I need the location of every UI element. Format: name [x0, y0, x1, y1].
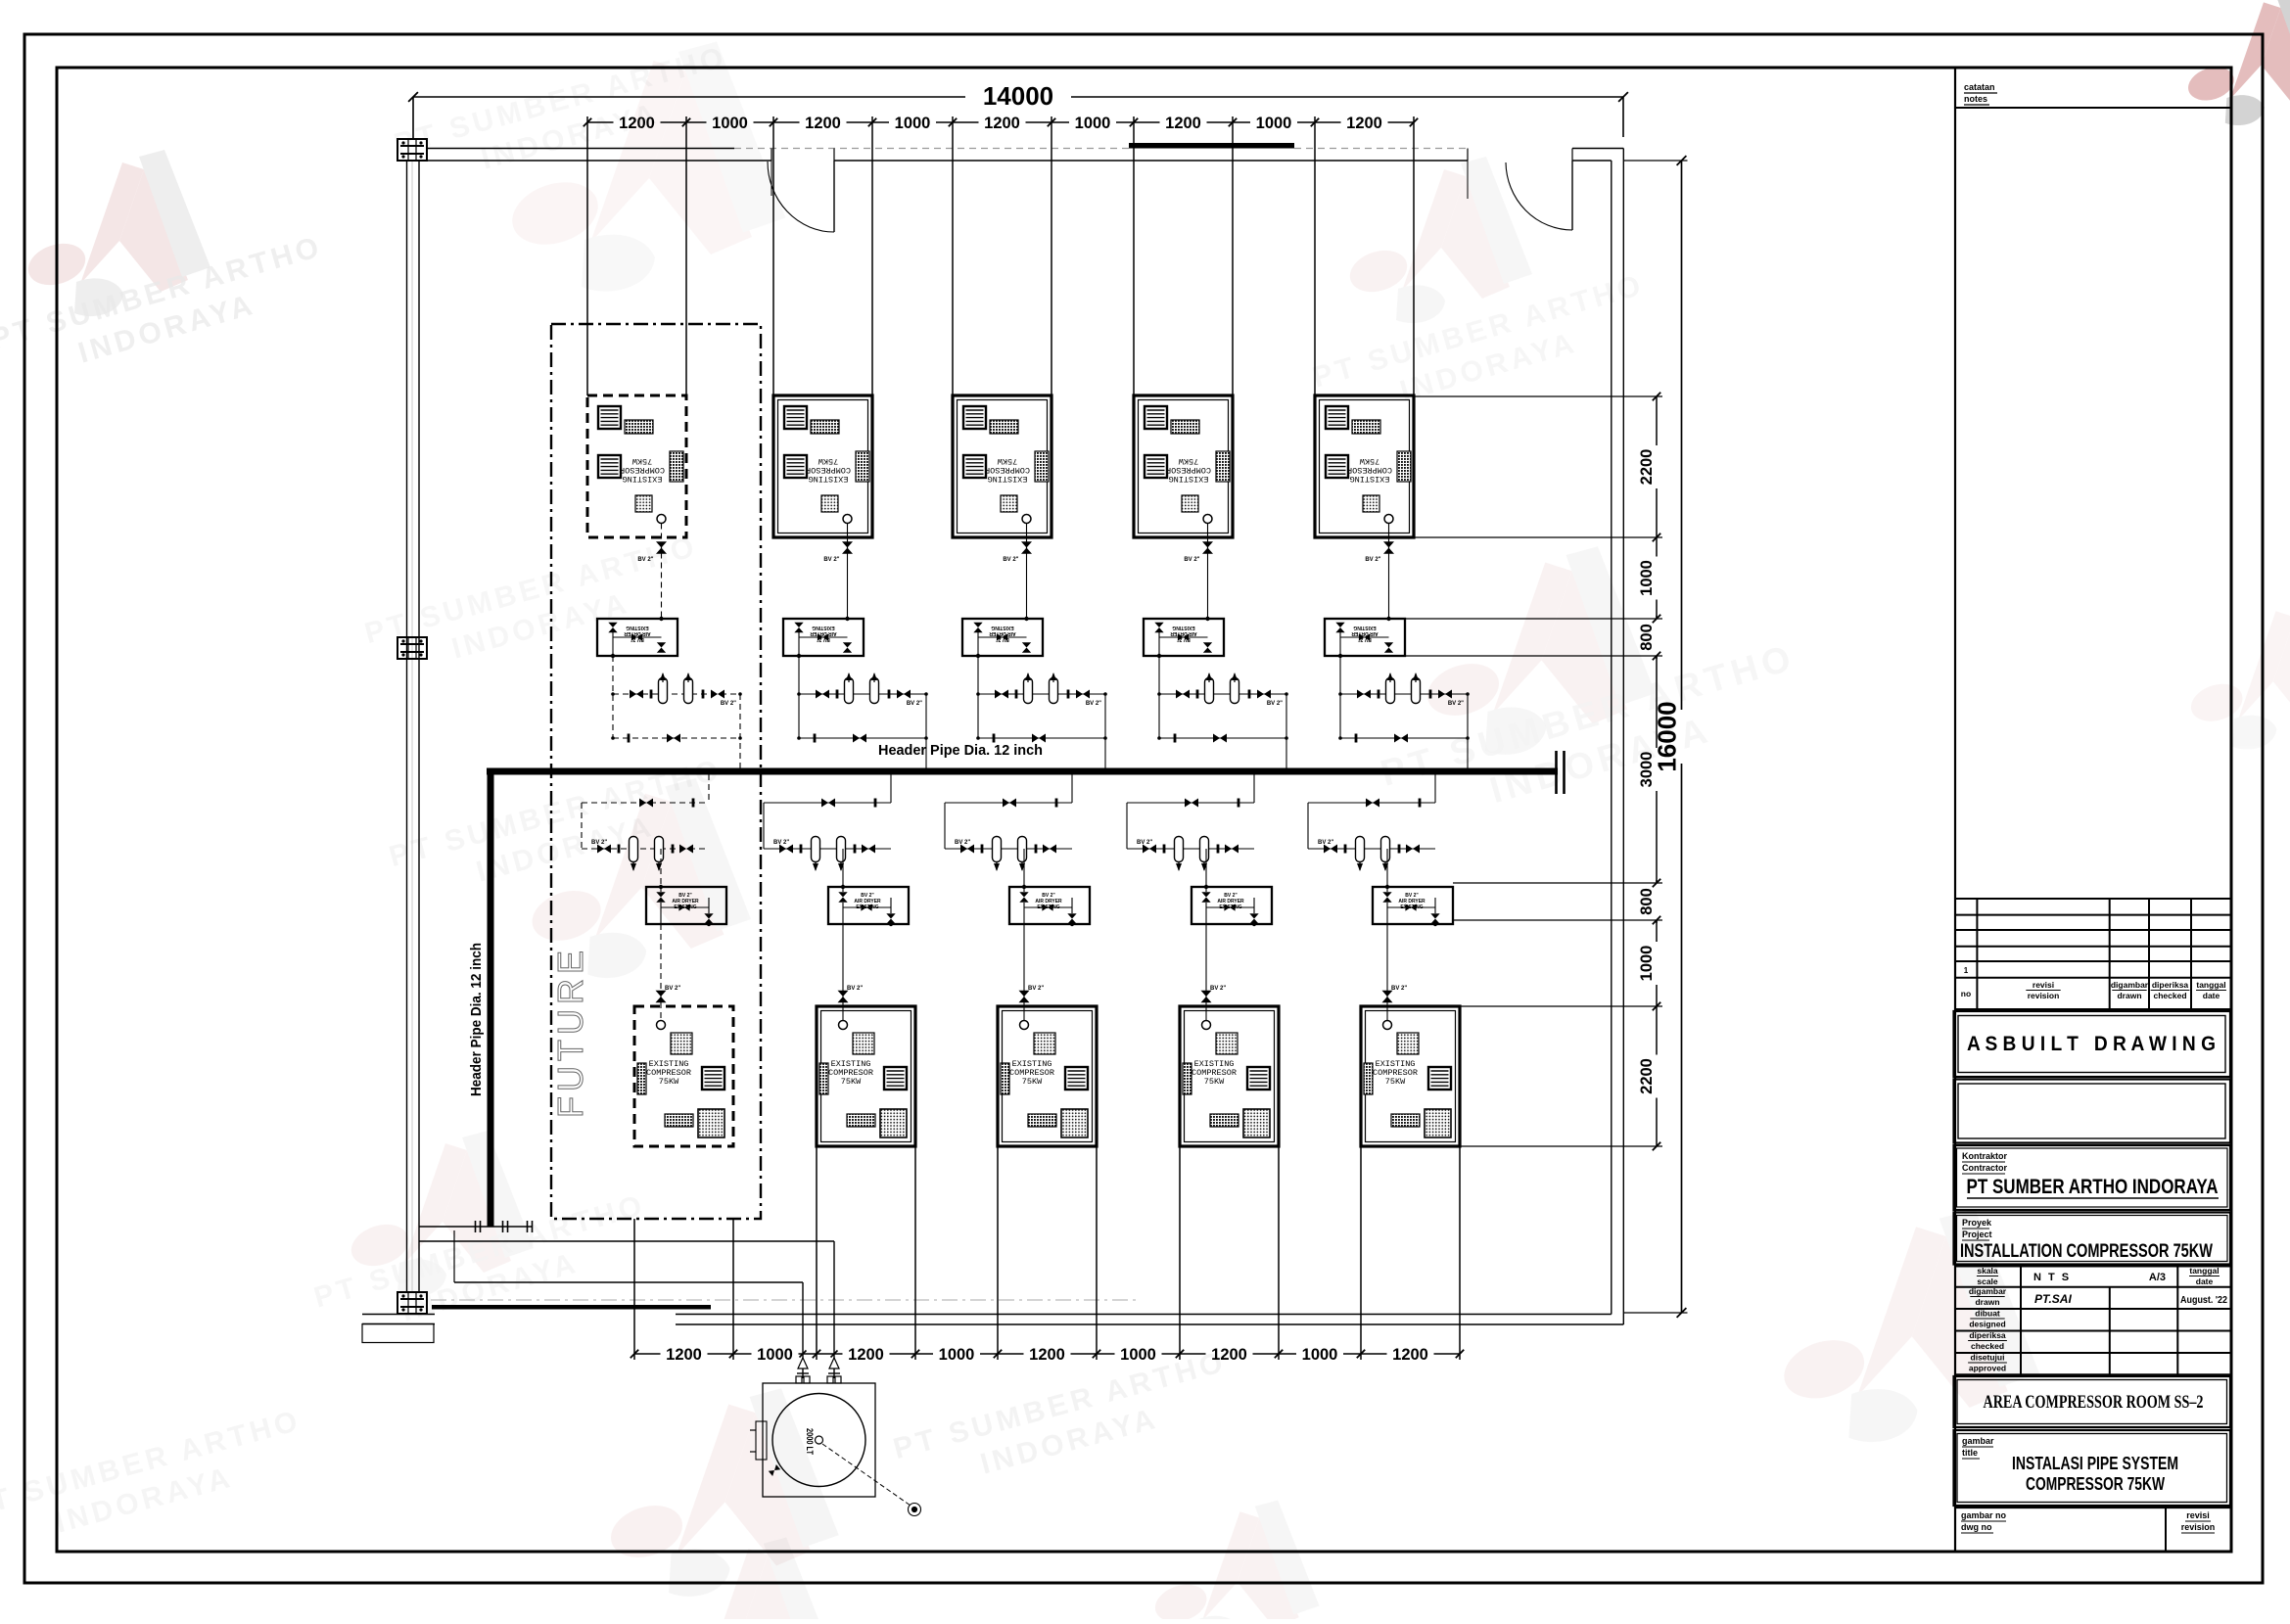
svg-text:BV 2": BV 2": [847, 986, 863, 992]
svg-text:1000: 1000: [1256, 115, 1292, 132]
svg-text:diperiksa: diperiksa: [2152, 980, 2189, 990]
svg-text:1000: 1000: [939, 1346, 975, 1364]
svg-text:BV 2": BV 2": [637, 557, 653, 563]
svg-text:1000: 1000: [1120, 1346, 1156, 1364]
svg-text:tanggal: tanggal: [2189, 1266, 2219, 1276]
svg-text:tanggal: tanggal: [2196, 980, 2225, 990]
svg-text:Kontraktor: Kontraktor: [1962, 1151, 2007, 1161]
svg-text:1000: 1000: [757, 1346, 793, 1364]
svg-text:FUTURE: FUTURE: [550, 946, 590, 1118]
svg-text:75KW: 75KW: [997, 456, 1017, 466]
svg-text:2200: 2200: [1638, 1058, 1656, 1094]
svg-text:dibuat: dibuat: [1975, 1309, 2000, 1319]
svg-text:EXISTING: EXISTING: [991, 625, 1013, 630]
svg-text:BV 2": BV 2": [1448, 701, 1464, 707]
svg-text:dwg no: dwg no: [1961, 1522, 1992, 1532]
svg-text:75KW: 75KW: [1204, 1077, 1225, 1087]
svg-text:Contractor: Contractor: [1962, 1163, 2007, 1173]
svg-text:EXISTING: EXISTING: [812, 625, 834, 630]
svg-text:1200: 1200: [666, 1346, 702, 1364]
svg-text:gambar: gambar: [1962, 1436, 1994, 1446]
svg-text:BV 2": BV 2": [1318, 840, 1333, 846]
svg-text:notes: notes: [1964, 94, 1987, 104]
svg-text:Proyek: Proyek: [1962, 1218, 1992, 1228]
svg-text:A/3: A/3: [2149, 1272, 2166, 1283]
svg-text:catatan: catatan: [1964, 82, 1995, 92]
svg-text:BV 2": BV 2": [591, 840, 607, 846]
svg-text:revisi: revisi: [2186, 1510, 2210, 1520]
svg-text:revision: revision: [2028, 991, 2060, 1000]
svg-text:N T S: N T S: [2033, 1272, 2071, 1283]
svg-text:drawn: drawn: [2117, 991, 2141, 1000]
svg-text:BV 2": BV 2": [1365, 557, 1380, 563]
svg-text:BV 2": BV 2": [1391, 986, 1407, 992]
svg-text:1200: 1200: [1165, 115, 1201, 132]
svg-text:1000: 1000: [1302, 1346, 1338, 1364]
svg-text:Header Pipe Dia. 12 inch: Header Pipe Dia. 12 inch: [878, 743, 1043, 759]
svg-text:EXISTING: EXISTING: [856, 905, 878, 910]
svg-text:1200: 1200: [619, 115, 655, 132]
svg-text:BV 2": BV 2": [1184, 557, 1199, 563]
svg-text:A S B U I L T D R A W I N G: A S B U I L T D R A W I N G: [1967, 1033, 2216, 1055]
svg-text:16000: 16000: [1653, 701, 1682, 771]
svg-text:Header Pipe Dia. 12 inch: Header Pipe Dia. 12 inch: [469, 943, 485, 1096]
svg-text:75KW: 75KW: [1178, 456, 1198, 466]
svg-text:INSTALASI PIPE SYSTEM: INSTALASI PIPE SYSTEM: [2012, 1454, 2178, 1473]
svg-text:1200: 1200: [984, 115, 1020, 132]
svg-text:BV 2": BV 2": [907, 701, 922, 707]
svg-text:1: 1: [1964, 966, 1969, 975]
svg-text:75KW: 75KW: [631, 456, 652, 466]
svg-text:skala: skala: [1977, 1266, 1998, 1276]
svg-text:BV 2": BV 2": [665, 986, 680, 992]
svg-text:1000: 1000: [1638, 946, 1656, 982]
svg-text:designed: designed: [1969, 1320, 2005, 1329]
svg-text:EXISTING: EXISTING: [626, 625, 648, 630]
svg-text:1000: 1000: [1075, 115, 1111, 132]
svg-text:EXISTING: EXISTING: [1400, 905, 1423, 910]
svg-text:BV 2": BV 2": [1210, 986, 1226, 992]
svg-text:BV 2": BV 2": [1086, 701, 1101, 707]
svg-text:scale: scale: [1977, 1276, 1998, 1286]
svg-text:1000: 1000: [1638, 560, 1656, 596]
svg-text:revisi: revisi: [2033, 980, 2054, 990]
svg-text:no: no: [1961, 989, 1971, 998]
svg-text:1200: 1200: [1029, 1346, 1065, 1364]
svg-text:75KW: 75KW: [1385, 1077, 1406, 1087]
svg-text:EXISTING: EXISTING: [1219, 905, 1241, 910]
svg-text:COMPRESSOR 75KW: COMPRESSOR 75KW: [2026, 1474, 2165, 1494]
svg-text:digambar: digambar: [1969, 1286, 2007, 1296]
svg-text:BV 2": BV 2": [1137, 840, 1152, 846]
svg-text:drawn: drawn: [1975, 1297, 1999, 1307]
svg-text:1000: 1000: [895, 115, 931, 132]
svg-text:1200: 1200: [848, 1346, 884, 1364]
svg-text:Project: Project: [1962, 1230, 1992, 1239]
svg-text:EXISTING: EXISTING: [1037, 905, 1059, 910]
svg-text:August. '22: August. '22: [2180, 1294, 2227, 1306]
svg-text:75KW: 75KW: [659, 1077, 679, 1087]
svg-text:EXISTING: EXISTING: [1172, 625, 1194, 630]
svg-text:disetujui: disetujui: [1971, 1353, 2005, 1363]
svg-text:14000: 14000: [983, 81, 1053, 111]
svg-text:checked: checked: [2153, 991, 2186, 1000]
svg-text:BV 2": BV 2": [721, 701, 736, 707]
svg-text:revision: revision: [2181, 1522, 2216, 1532]
svg-text:digambar: digambar: [2111, 980, 2149, 990]
svg-text:INSTALLATION COMPRESSOR 75KW: INSTALLATION COMPRESSOR 75KW: [1960, 1240, 2213, 1262]
svg-text:2000 LT: 2000 LT: [804, 1428, 815, 1455]
svg-text:gambar no: gambar no: [1961, 1510, 2007, 1520]
svg-text:checked: checked: [1971, 1341, 2004, 1351]
svg-text:1200: 1200: [1346, 115, 1382, 132]
svg-text:75KW: 75KW: [1022, 1077, 1043, 1087]
svg-text:title: title: [1962, 1448, 1978, 1458]
svg-text:PT.SAI: PT.SAI: [2034, 1292, 2072, 1306]
svg-text:date: date: [2196, 1276, 2214, 1286]
svg-text:75KW: 75KW: [1359, 456, 1379, 466]
svg-text:BV 2": BV 2": [1267, 701, 1283, 707]
svg-text:EXISTING: EXISTING: [674, 905, 696, 910]
svg-text:PT SUMBER ARTHO INDORAYA: PT SUMBER ARTHO INDORAYA: [1967, 1176, 2219, 1198]
svg-text:75KW: 75KW: [818, 456, 838, 466]
svg-text:BV 2": BV 2": [1028, 986, 1044, 992]
svg-text:800: 800: [1638, 888, 1656, 915]
svg-text:1200: 1200: [805, 115, 841, 132]
svg-text:1200: 1200: [1392, 1346, 1428, 1364]
svg-text:BV 2": BV 2": [1003, 557, 1018, 563]
svg-text:date: date: [2203, 991, 2220, 1000]
svg-text:1200: 1200: [1211, 1346, 1247, 1364]
svg-text:BV 2": BV 2": [773, 840, 789, 846]
svg-text:EXISTING: EXISTING: [1353, 625, 1376, 630]
svg-text:diperiksa: diperiksa: [1969, 1330, 2006, 1340]
svg-text:75KW: 75KW: [841, 1077, 862, 1087]
svg-text:BV 2": BV 2": [823, 557, 839, 563]
svg-text:2200: 2200: [1638, 449, 1656, 486]
svg-text:AREA COMPRESSOR ROOM SS–2: AREA COMPRESSOR ROOM SS–2: [1984, 1393, 2204, 1413]
svg-text:800: 800: [1638, 624, 1656, 651]
svg-text:approved: approved: [1969, 1364, 2006, 1373]
svg-text:BV 2": BV 2": [955, 840, 970, 846]
svg-text:1000: 1000: [712, 115, 748, 132]
